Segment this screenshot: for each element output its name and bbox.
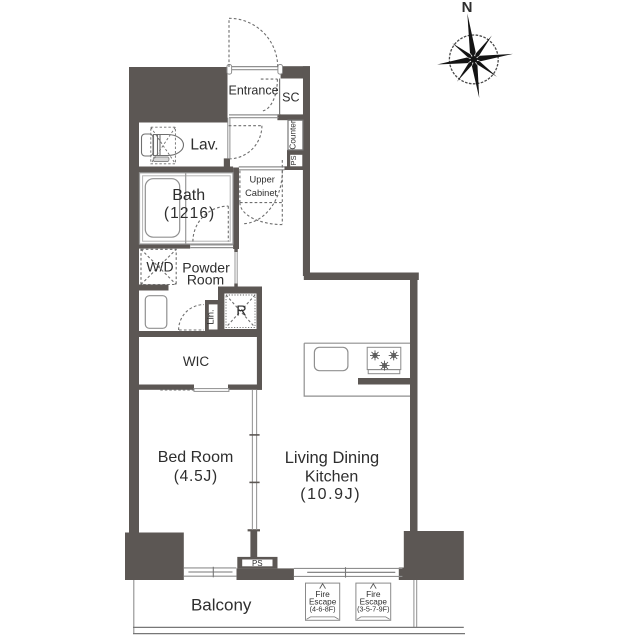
svg-text:SC: SC [282, 91, 299, 105]
svg-text:PS: PS [289, 155, 298, 165]
svg-text:Room: Room [187, 272, 224, 288]
svg-text:(10.9J): (10.9J) [300, 486, 361, 503]
svg-text:(4.5J): (4.5J) [174, 468, 218, 485]
svg-text:Living Dining: Living Dining [285, 449, 379, 467]
svg-text:W/D: W/D [146, 259, 173, 275]
svg-text:(3-5-7-9F): (3-5-7-9F) [357, 605, 389, 614]
svg-text:Counter: Counter [288, 120, 297, 149]
svg-text:Kitchen: Kitchen [305, 469, 358, 486]
svg-text:Upper: Upper [250, 174, 275, 184]
svg-text:Balcony: Balcony [191, 595, 252, 614]
svg-text:R: R [236, 304, 246, 320]
svg-text:Lav.: Lav. [190, 137, 218, 154]
svg-text:(1216): (1216) [164, 205, 215, 222]
svg-text:Cabinet: Cabinet [245, 188, 277, 198]
svg-text:PS: PS [252, 559, 263, 568]
svg-text:Entrance: Entrance [228, 84, 278, 98]
svg-text:(4-6-8F): (4-6-8F) [310, 605, 336, 614]
svg-text:Lin.: Lin. [205, 309, 216, 324]
svg-text:Bath: Bath [172, 187, 205, 204]
svg-text:Bed Room: Bed Room [158, 449, 234, 466]
svg-text:N: N [462, 0, 473, 16]
svg-text:WIC: WIC [183, 354, 209, 369]
